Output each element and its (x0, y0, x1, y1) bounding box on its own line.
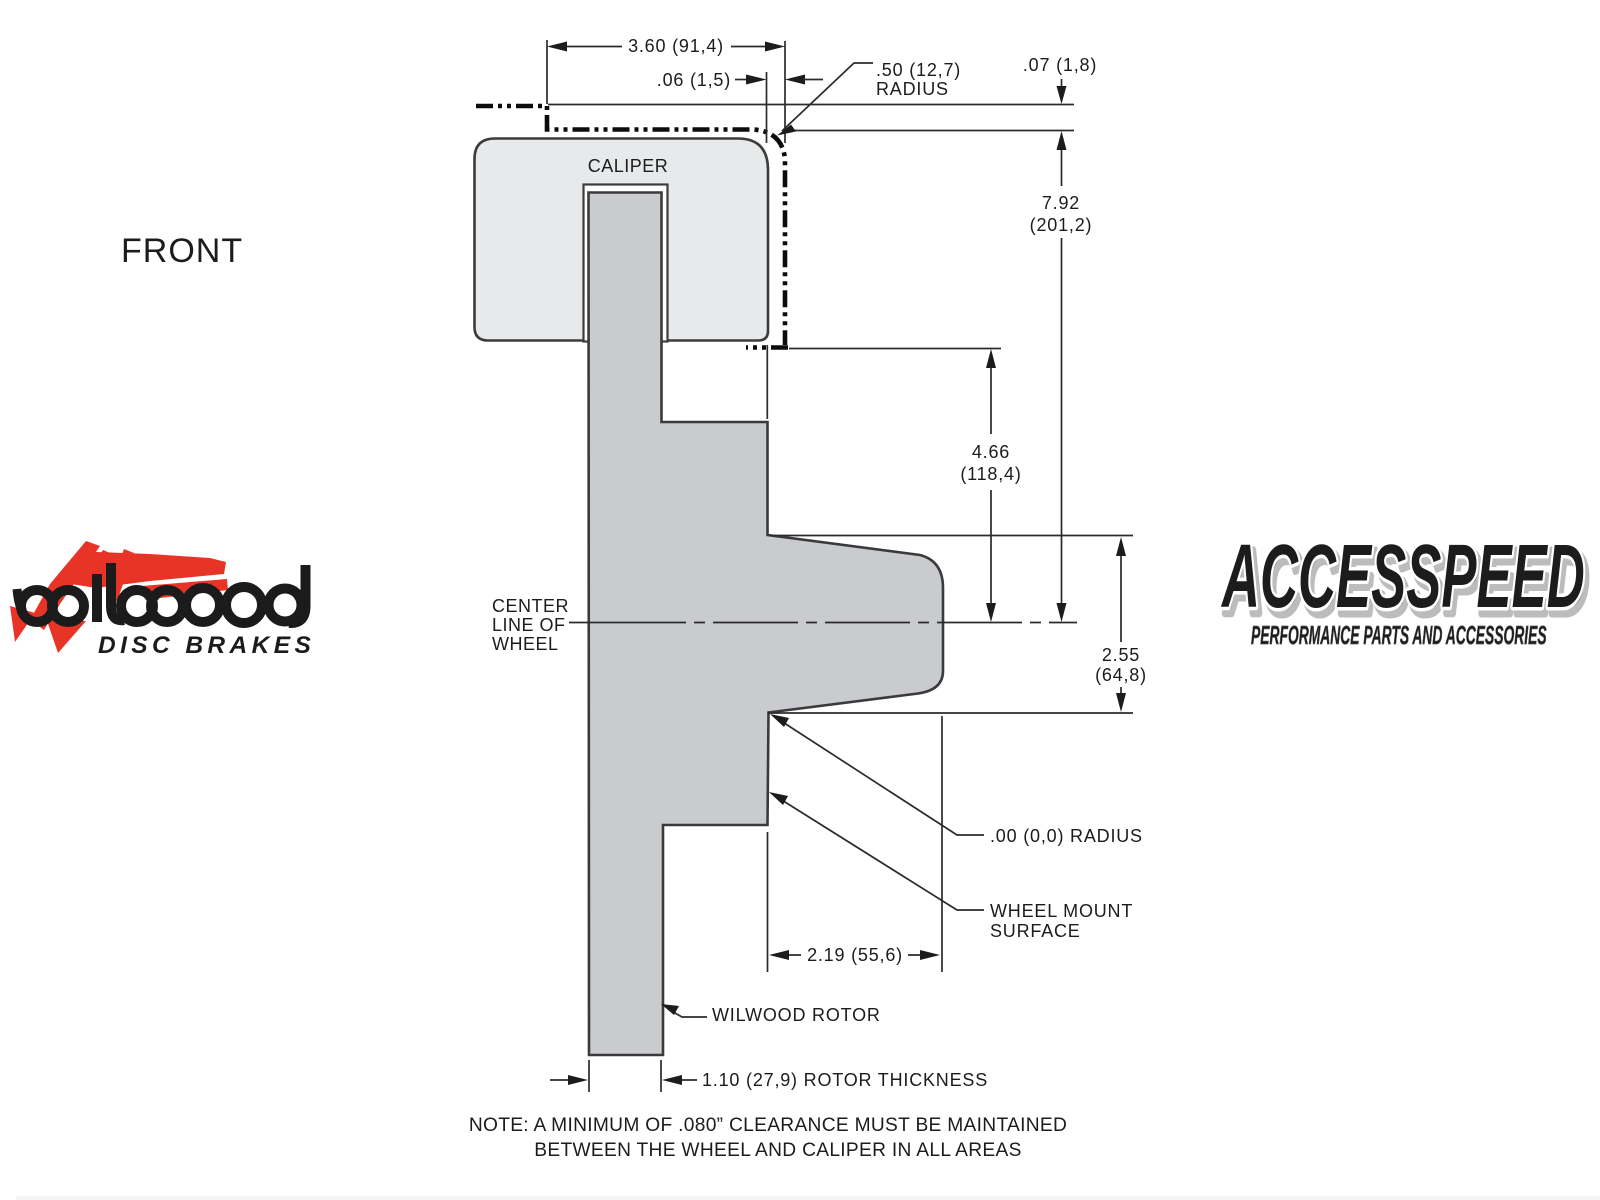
svg-text:SURFACE: SURFACE (990, 921, 1081, 941)
svg-text:BETWEEN THE WHEEL AND CALIPER: BETWEEN THE WHEEL AND CALIPER IN ALL ARE… (534, 1140, 1021, 1161)
svg-text:WHEEL: WHEEL (492, 634, 559, 654)
svg-text:LINE OF: LINE OF (492, 615, 566, 635)
svg-text:.00 (0,0) RADIUS: .00 (0,0) RADIUS (990, 826, 1143, 846)
svg-text:(201,2): (201,2) (1030, 215, 1093, 235)
svg-text:.50 (12,7): .50 (12,7) (876, 60, 961, 80)
svg-text:.07 (1,8): .07 (1,8) (1023, 55, 1097, 75)
svg-text:(64,8): (64,8) (1095, 665, 1147, 685)
svg-text:4.66: 4.66 (972, 442, 1010, 462)
svg-text:ACCESSPEED: ACCESSPEED (1221, 525, 1585, 626)
svg-text:.06 (1,5): .06 (1,5) (657, 70, 731, 90)
svg-text:RADIUS: RADIUS (876, 79, 949, 99)
svg-text:CENTER: CENTER (492, 596, 569, 616)
svg-text:WILWOOD ROTOR: WILWOOD ROTOR (712, 1005, 881, 1025)
svg-text:3.60 (91,4): 3.60 (91,4) (628, 36, 724, 56)
svg-text:NOTE: A MINIMUM OF .080” CLEAR: NOTE: A MINIMUM OF .080” CLEARANCE MUST … (469, 1115, 1067, 1136)
svg-text:CALIPER: CALIPER (588, 156, 669, 176)
svg-text:7.92: 7.92 (1042, 193, 1080, 213)
svg-text:FRONT: FRONT (121, 232, 243, 270)
svg-text:WHEEL MOUNT: WHEEL MOUNT (990, 901, 1133, 921)
svg-text:DISC BRAKES: DISC BRAKES (98, 632, 315, 659)
svg-text:(118,4): (118,4) (960, 464, 1021, 484)
svg-text:PERFORMANCE PARTS AND ACCESSOR: PERFORMANCE PARTS AND ACCESSORIES (1251, 622, 1547, 651)
svg-text:2.19 (55,6): 2.19 (55,6) (807, 945, 903, 965)
svg-text:1.10 (27,9) ROTOR THICKNESS: 1.10 (27,9) ROTOR THICKNESS (702, 1070, 988, 1090)
svg-text:2.55: 2.55 (1102, 645, 1140, 665)
